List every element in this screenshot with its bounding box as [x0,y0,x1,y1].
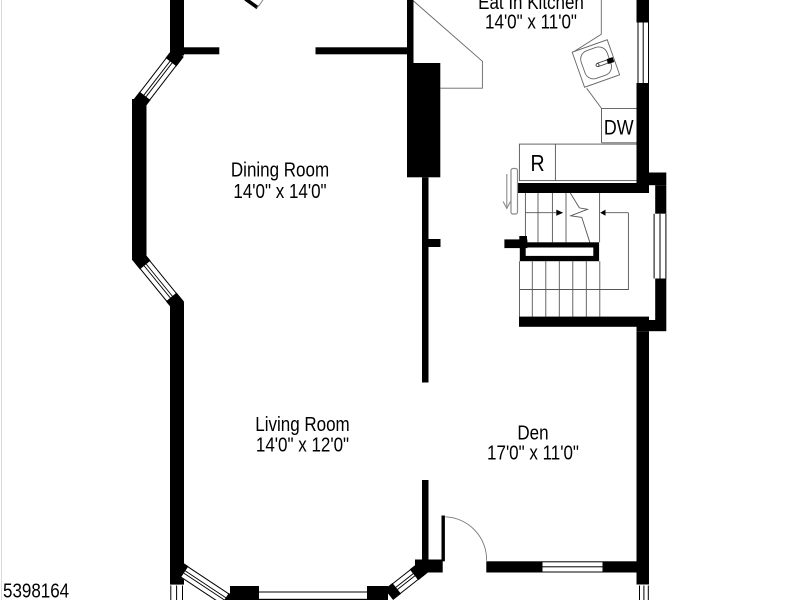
svg-text:R: R [531,150,545,176]
svg-text:14'0" x 11'0": 14'0" x 11'0" [485,10,577,33]
svg-text:14'0" x 12'0": 14'0" x 12'0" [256,433,349,456]
svg-text:Living Room: Living Room [255,412,349,435]
svg-text:Dining Room: Dining Room [231,158,329,181]
svg-text:DW: DW [604,116,634,140]
svg-text:14'0" x 14'0": 14'0" x 14'0" [233,180,326,203]
svg-text:5398164: 5398164 [3,579,69,600]
svg-text:17'0" x 11'0": 17'0" x 11'0" [487,441,579,464]
